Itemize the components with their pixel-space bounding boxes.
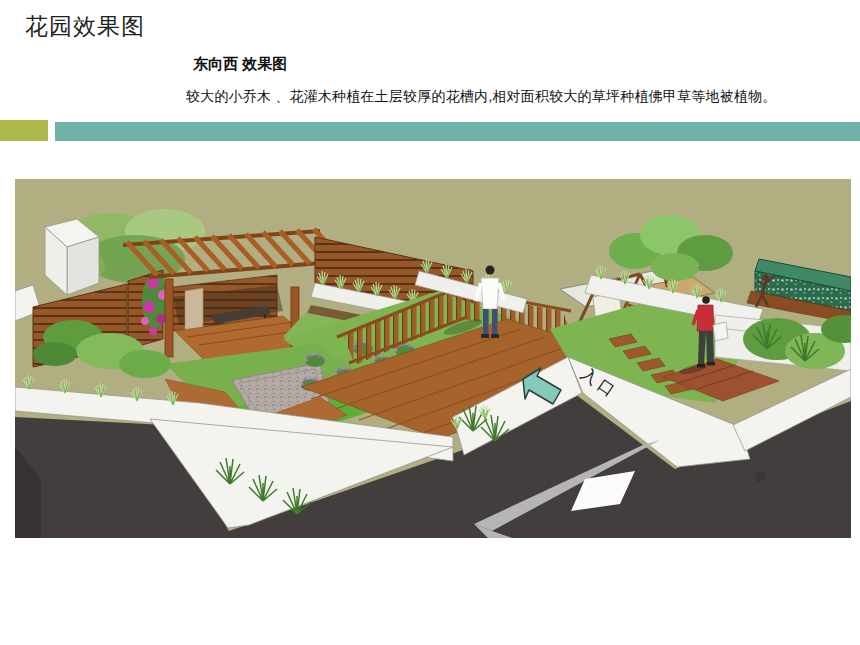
page-title: 花园效果图: [25, 11, 145, 42]
caption-heading: 东向西 效果图: [193, 55, 287, 74]
garden-rendering-image: 回 入口: [15, 179, 851, 538]
presentation-slide: 花园效果图 东向西 效果图 较大的小乔木 、花灌木种植在土层较厚的花槽内,相对面…: [0, 0, 860, 645]
garden-3d-scene: 回 入口: [15, 179, 851, 538]
olive-accent-block: [0, 120, 48, 141]
caption-body: 较大的小乔木 、花灌木种植在土层较厚的花槽内,相对面积较大的草坪种植佛甲草等地被…: [186, 88, 776, 106]
teal-divider-bar: [55, 122, 860, 141]
